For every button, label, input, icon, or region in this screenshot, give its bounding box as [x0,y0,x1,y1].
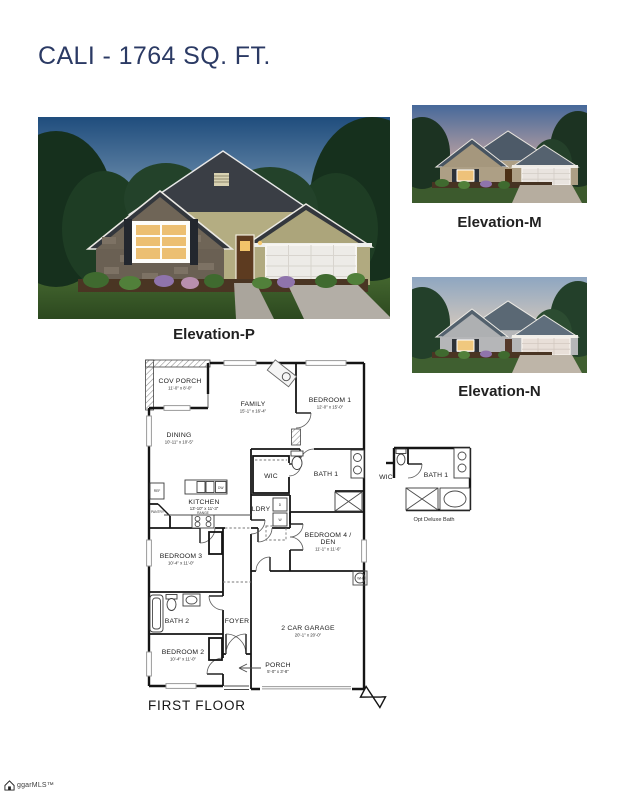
svg-text:11'-1" x 11'-6": 11'-1" x 11'-6" [315,547,341,552]
bath2-fixtures [150,594,200,632]
svg-text:10'-4" x 11'-0": 10'-4" x 11'-0" [170,657,197,662]
mls-logo: ggarMLS™ [4,780,54,791]
svg-text:10'-4" x 11'-0": 10'-4" x 11'-0" [168,561,195,566]
elevation-m-photo [412,105,587,203]
label-bath1: BATH 1 [314,471,339,478]
porch-leader [239,664,261,672]
label-bedroom1: BEDROOM 1 [309,397,352,404]
vanity [454,448,470,478]
elevation-m-label: Elevation-M [412,214,587,231]
floor-plan-drawing: WH COV PORCH 11'-0" x 8'-0" FAMILY 15'-1… [140,352,480,720]
label-opt-wic: WIC [379,474,393,481]
svg-text:DEN: DEN [321,539,336,546]
elevation-p-photo [38,117,390,319]
bath1-fixtures [291,450,364,511]
label-wic: WIC [264,473,278,480]
elevation-m-image [412,105,587,203]
label-opt-caption: Opt Deluxe Bath [413,517,454,523]
label-ldry: LDRY [252,506,271,513]
label-dining: DINING [167,432,192,439]
svg-text:11'-0" x 8'-0": 11'-0" x 8'-0" [168,386,192,391]
label-bedroom3: BEDROOM 3 [160,553,203,560]
opt-deluxe-bath-detail: WIC BATH 1 Opt Deluxe Bath [379,448,470,523]
page-title: CALI - 1764 SQ. FT. [38,42,271,71]
label-pantry: PANTRY [151,510,165,514]
label-range: RANGE [197,511,210,515]
label-porch: PORCH [265,662,291,669]
tub [150,595,163,632]
svg-text:5'-0" x 3'-8": 5'-0" x 3'-8" [267,669,289,674]
label-ref: REF [154,489,161,493]
toilet [291,451,303,456]
elevation-p-label: Elevation-P [38,326,390,343]
label-opt-bath1: BATH 1 [424,472,449,479]
label-garage: 2 CAR GARAGE [281,625,335,632]
north-arrow-icon [360,687,385,708]
label-family: FAMILY [241,401,266,408]
floor-plan: WH COV PORCH 11'-0" x 8'-0" FAMILY 15'-1… [140,352,480,720]
mls-logo-text: ggarMLS™ [17,782,54,789]
svg-text:WH: WH [357,576,363,580]
flyer-page: CALI - 1764 SQ. FT. [0,0,618,800]
label-cov-porch: COV PORCH [159,378,202,385]
range [192,515,214,528]
first-floor-caption: FIRST FLOOR [148,698,246,713]
garage-door-opening [260,685,352,692]
svg-text:10'-11" x 10'-5": 10'-11" x 10'-5" [165,440,194,445]
label-bedroom2: BEDROOM 2 [162,649,205,656]
toilet [396,449,406,454]
label-bath2: BATH 2 [165,618,190,625]
porch-edge [224,686,249,690]
label-kitchen: KITCHEN [188,499,219,506]
svg-text:12'-0" x 15'-0": 12'-0" x 15'-0" [317,405,344,410]
svg-text:15'-1" x 16'-4": 15'-1" x 16'-4" [240,409,267,414]
svg-text:20'-1" x 20'-0": 20'-1" x 20'-0" [295,633,322,638]
label-foyer: FOYER [225,618,249,625]
elevation-p-image [38,117,390,319]
label-dw: DW [218,486,224,490]
label-bedroom4: BEDROOM 4 / [305,532,352,539]
house-icon [4,780,15,791]
